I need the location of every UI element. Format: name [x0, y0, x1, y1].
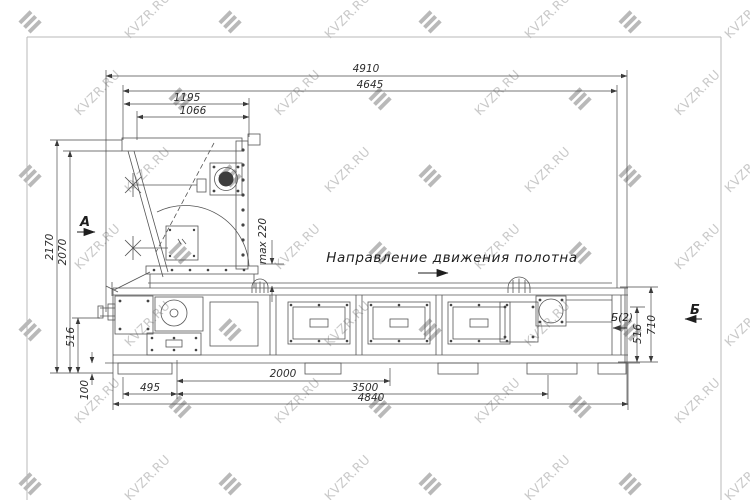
belt-arch-right: [508, 277, 530, 293]
dim-max-220: max 220: [257, 218, 269, 265]
dim-1066: 1066: [180, 105, 207, 117]
dim-1195: 1195: [174, 92, 201, 104]
technical-drawing: 4910 4645 1195 1066 2170 2070 516 100 71…: [0, 0, 750, 500]
machine-head: [106, 134, 260, 296]
dimension-lines: [50, 70, 658, 410]
dim-2170: 2170: [44, 233, 56, 260]
section-b-label: Б: [690, 303, 700, 318]
dim-516-left: 516: [65, 327, 77, 347]
dim-4910: 4910: [353, 63, 380, 75]
bed-panels: [288, 302, 510, 344]
direction-label: Направление движения полотна: [326, 250, 577, 266]
machine-base-feet: [118, 363, 626, 374]
dim-710: 710: [646, 315, 658, 335]
dim-2000: 2000: [270, 368, 297, 380]
end-roller: [500, 296, 612, 342]
dim-4645: 4645: [357, 79, 384, 91]
gearbox: [98, 296, 258, 355]
drawing-sheet: KVZR.RUKVZR.RUKVZR.RUKVZR.RUKVZR.RUKVZR.…: [0, 0, 750, 500]
dim-2070: 2070: [57, 238, 69, 265]
section-a-label: А: [79, 215, 90, 230]
head-bolts: [153, 148, 246, 271]
dim-495: 495: [140, 382, 160, 394]
machine-bed: [98, 277, 640, 363]
dim-516-right: 516: [632, 324, 644, 344]
dim-4840: 4840: [358, 392, 385, 404]
section-b2-label: Б(2): [611, 312, 633, 324]
dim-100: 100: [79, 380, 91, 400]
dimension-labels: 4910 4645 1195 1066 2170 2070 516 100 71…: [44, 63, 658, 404]
